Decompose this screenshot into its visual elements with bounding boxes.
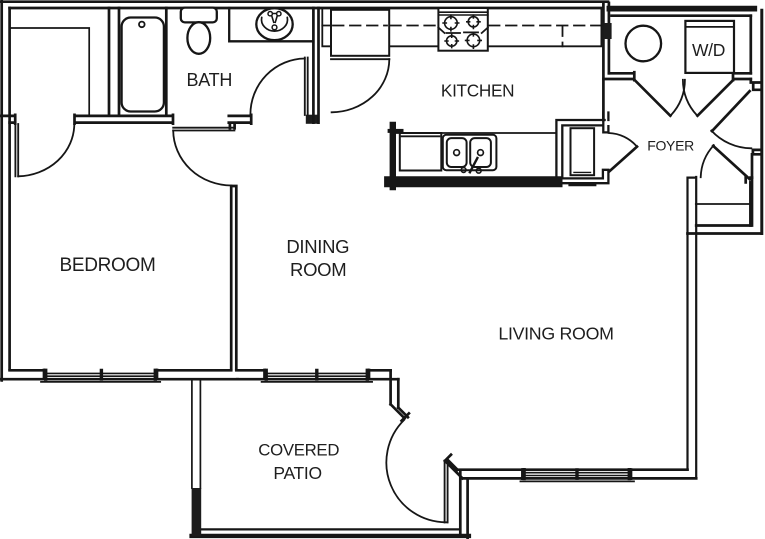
svg-text:FOYER: FOYER (647, 138, 694, 154)
svg-text:COVERED: COVERED (258, 441, 339, 460)
svg-text:ROOM: ROOM (290, 259, 346, 280)
svg-text:KITCHEN: KITCHEN (441, 80, 514, 100)
svg-text:LIVING ROOM: LIVING ROOM (498, 324, 613, 344)
svg-text:DINING: DINING (286, 236, 349, 257)
svg-text:PATIO: PATIO (273, 463, 321, 483)
svg-text:BATH: BATH (187, 70, 232, 90)
svg-text:BEDROOM: BEDROOM (59, 255, 155, 276)
svg-text:W/D: W/D (692, 40, 725, 60)
